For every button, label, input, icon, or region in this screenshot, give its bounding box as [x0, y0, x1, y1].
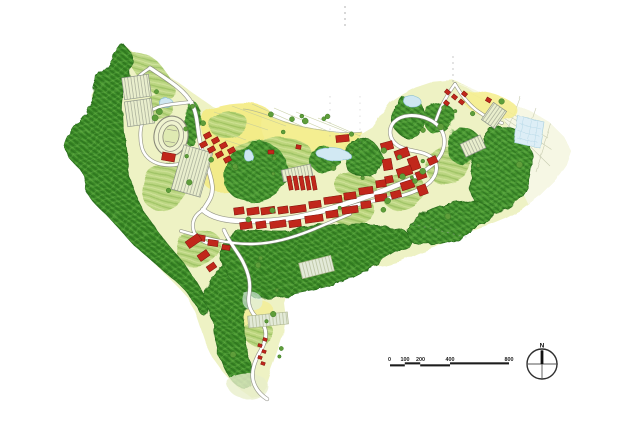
svg-text:800: 800: [505, 357, 514, 363]
svg-text:400: 400: [446, 357, 455, 363]
svg-text:0: 0: [388, 357, 391, 363]
svg-text:200: 200: [416, 357, 425, 363]
svg-text:N: N: [540, 343, 545, 350]
svg-text:100: 100: [401, 357, 410, 363]
